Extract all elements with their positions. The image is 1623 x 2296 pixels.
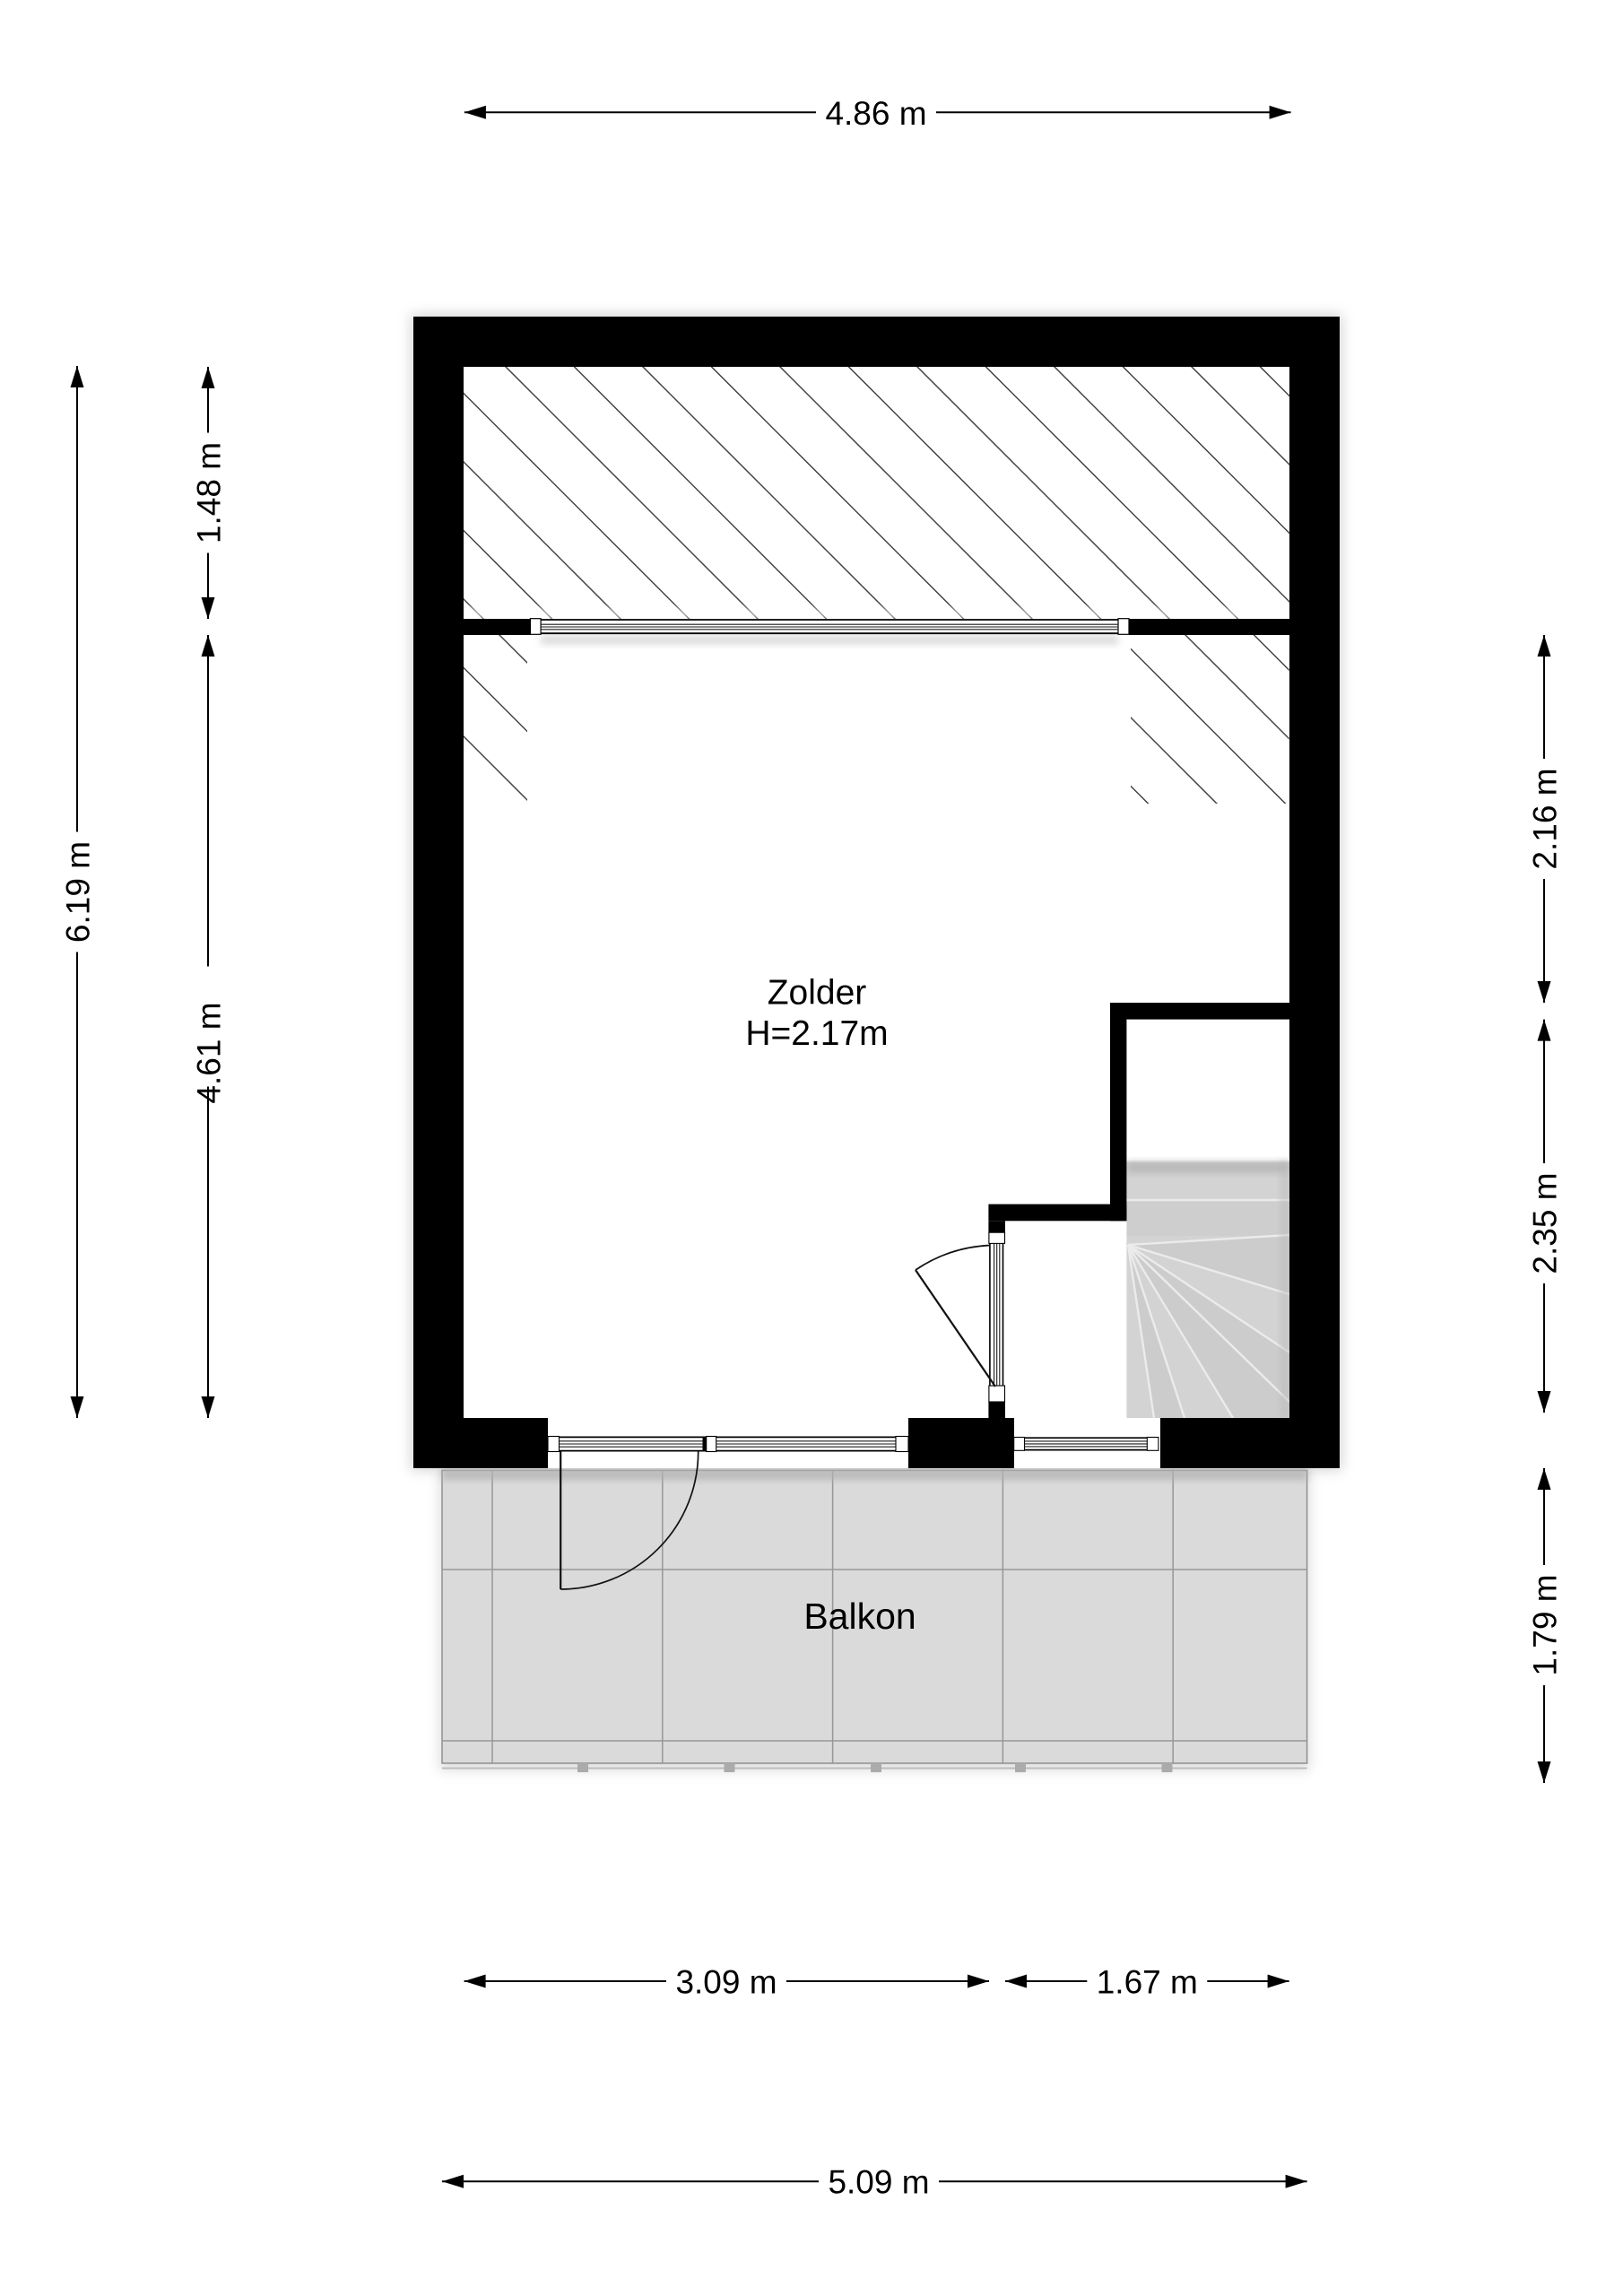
svg-text:1.48 m: 1.48 m	[191, 442, 228, 544]
svg-text:4.61 m: 4.61 m	[191, 1002, 228, 1103]
svg-text:1.79 m: 1.79 m	[1527, 1574, 1564, 1675]
svg-text:Balkon: Balkon	[803, 1596, 916, 1637]
svg-text:1.67 m: 1.67 m	[1097, 1964, 1198, 2001]
svg-text:Zolder: Zolder	[768, 974, 867, 1013]
svg-text:3.09 m: 3.09 m	[675, 1964, 777, 2001]
svg-text:4.86 m: 4.86 m	[825, 95, 926, 132]
svg-text:2.16 m: 2.16 m	[1527, 768, 1564, 869]
svg-text:6.19 m: 6.19 m	[60, 841, 97, 943]
svg-text:H=2.17m: H=2.17m	[745, 1014, 888, 1053]
svg-text:5.09 m: 5.09 m	[828, 2164, 929, 2201]
svg-text:2.35 m: 2.35 m	[1527, 1172, 1564, 1274]
